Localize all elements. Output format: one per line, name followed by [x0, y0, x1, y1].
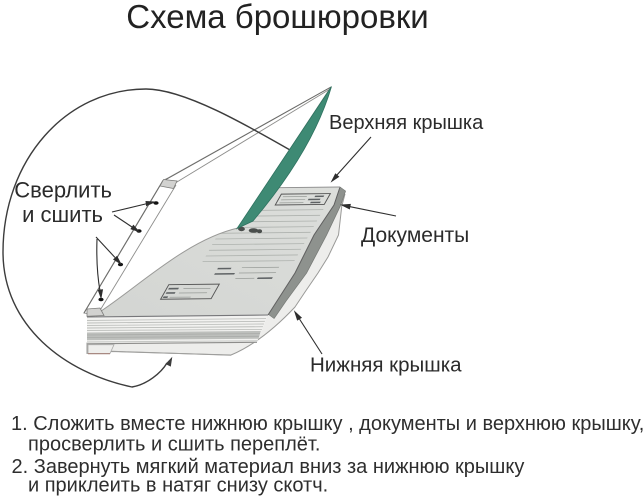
svg-text:Верхняя крышка: Верхняя крышка — [329, 112, 484, 134]
svg-text:Нижняя крышка: Нижняя крышка — [310, 354, 462, 377]
svg-text:Документы: Документы — [361, 224, 469, 247]
svg-text:Схема брошюровки: Схема брошюровки — [126, 0, 428, 35]
svg-text:1. Сложить вместе нижнюю крышк: 1. Сложить вместе нижнюю крышку , докуме… — [11, 413, 644, 435]
svg-text:просверлить и сшить переплёт.: просверлить и сшить переплёт. — [28, 434, 320, 456]
svg-text:Сверлить: Сверлить — [14, 178, 112, 203]
svg-text:и приклеить в натяг снизу скот: и приклеить в натяг снизу скотч. — [28, 475, 328, 497]
svg-text:и сшить: и сшить — [22, 202, 103, 227]
